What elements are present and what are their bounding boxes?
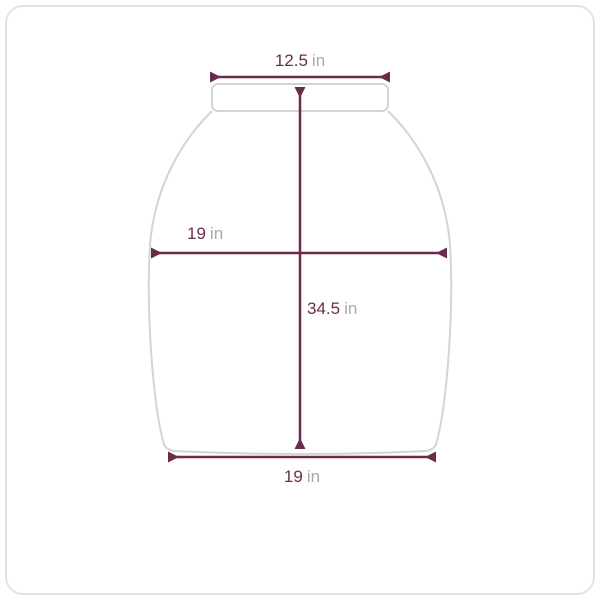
arrowhead-right-icon [436, 248, 447, 259]
bottom-width-label: 19in [168, 467, 436, 487]
mid-width-label: 19in [187, 224, 223, 244]
dimensions-diagram [0, 0, 600, 600]
top-width-unit: in [312, 51, 325, 70]
height-label: 34.5in [307, 299, 357, 319]
arrowhead-bottom-icon [295, 438, 306, 449]
arrowhead-top-icon [295, 87, 306, 98]
mid-width-unit: in [210, 224, 223, 243]
bottom-width-unit: in [307, 467, 320, 486]
height-unit: in [344, 299, 357, 318]
arrowhead-right-icon [425, 452, 436, 463]
top-width-label: 12.5in [210, 51, 390, 71]
bottom-width-value: 19 [284, 467, 303, 486]
arrowhead-right-icon [379, 72, 390, 83]
arrowhead-left-icon [210, 72, 221, 83]
page: 12.5in 19in 34.5in 19in [0, 0, 600, 600]
top-width-value: 12.5 [275, 51, 308, 70]
height-dimension [295, 87, 306, 449]
mid-width-value: 19 [187, 224, 206, 243]
top-width-dimension [210, 72, 390, 83]
arrowhead-left-icon [168, 452, 179, 463]
arrowhead-left-icon [151, 248, 162, 259]
height-value: 34.5 [307, 299, 340, 318]
